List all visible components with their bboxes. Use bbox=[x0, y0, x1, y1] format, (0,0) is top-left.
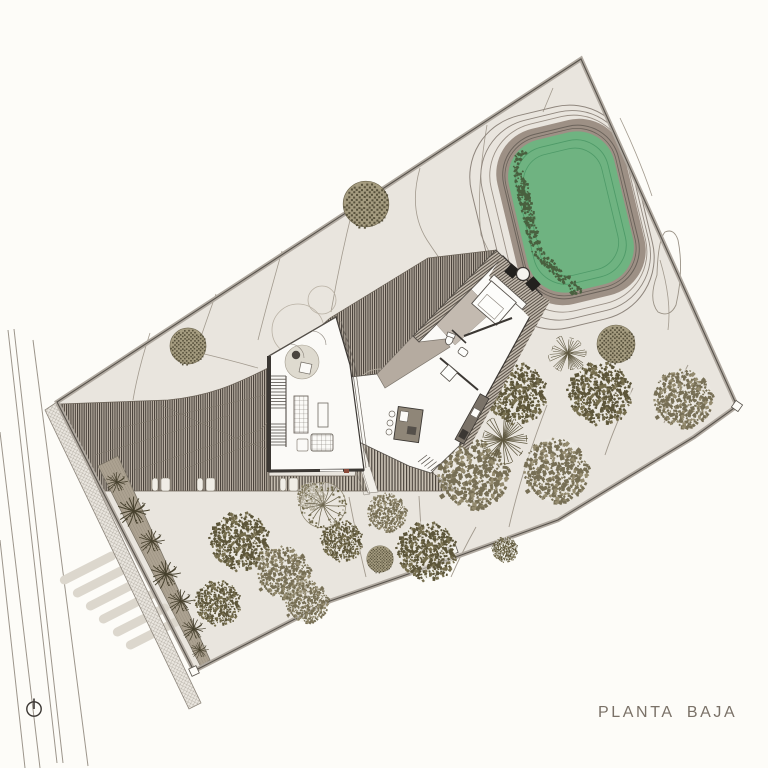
svg-text:PLANTA BAJA: PLANTA BAJA bbox=[598, 704, 737, 721]
